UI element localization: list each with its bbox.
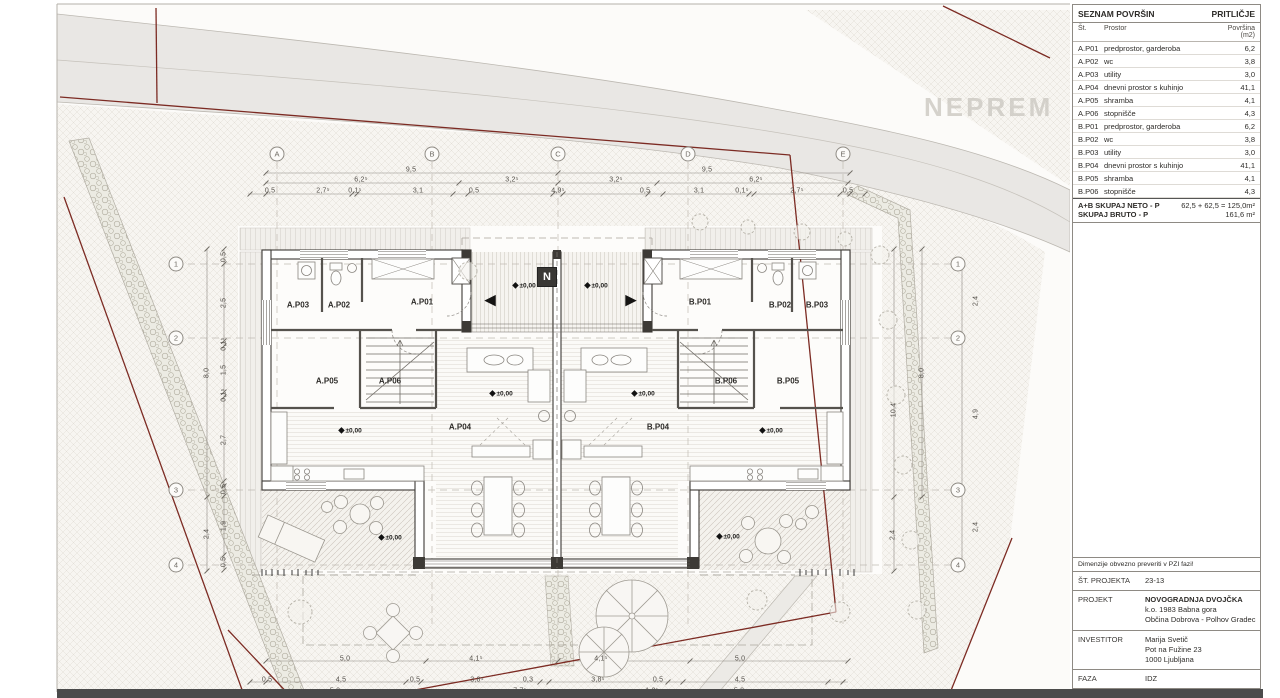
- project-municipality: Občina Dobrova - Polhov Gradec: [1145, 615, 1255, 624]
- project-label: PROJEKT: [1073, 594, 1145, 626]
- floor-plan-sheet: 9,59,56,2⁵3,2⁵3,2⁵6,2⁵0,52,7⁵0,1⁵3,10,54…: [0, 0, 1280, 698]
- investor-city: 1000 Ljubljana: [1145, 655, 1194, 664]
- investor-street: Pot na Fužine 23: [1145, 645, 1202, 654]
- project-number: 23-13: [1145, 575, 1260, 587]
- area-table-row: A.P06stopnišče4,3: [1073, 107, 1260, 120]
- site-plan: 9,59,56,2⁵3,2⁵3,2⁵6,2⁵0,52,7⁵0,1⁵3,10,54…: [0, 0, 1070, 698]
- area-table-row: A.P03utility3,0: [1073, 68, 1260, 81]
- area-table-row: B.P02wc3,8: [1073, 133, 1260, 146]
- area-table-row: B.P03utility3,0: [1073, 146, 1260, 159]
- title-block: Dimenzije obvezno preveriti v PZI fazi! …: [1073, 557, 1260, 688]
- area-table-row: B.P06stopnišče4,3: [1073, 185, 1260, 198]
- area-table-row: A.P05shramba4,1: [1073, 94, 1260, 107]
- project-number-row: ŠT. PROJEKTA 23-13: [1073, 572, 1260, 591]
- investor-name: Marija Svetič: [1145, 635, 1188, 644]
- col-room: Prostor: [1104, 25, 1215, 39]
- investor-label: INVESTITOR: [1073, 634, 1145, 666]
- area-table: SEZNAM POVRŠIN PRITLIČJE Št. Prostor Pov…: [1073, 5, 1260, 223]
- area-table-row: A.P01predprostor, garderoba6,2: [1073, 42, 1260, 55]
- sum-neto-label: A+B SKUPAJ NETO - P: [1078, 201, 1160, 210]
- phase-row: FAZA IDZ: [1073, 670, 1260, 688]
- area-table-header: SEZNAM POVRŠIN PRITLIČJE: [1073, 5, 1260, 23]
- area-table-rows: A.P01predprostor, garderoba6,2A.P02wc3,8…: [1073, 42, 1260, 198]
- sheet-bottom-bar: [57, 689, 1263, 698]
- sum-neto-value: 62,5 + 62,5 = 125,0m²: [1181, 201, 1255, 210]
- investor-row: INVESTITOR Marija Svetič Pot na Fužine 2…: [1073, 631, 1260, 670]
- dimension-note: Dimenzije obvezno preveriti v PZI fazi!: [1073, 557, 1260, 572]
- area-table-row: A.P04dnevni prostor s kuhinjo41,1: [1073, 81, 1260, 94]
- area-table-title: SEZNAM POVRŠIN: [1078, 9, 1155, 19]
- area-table-summary: A+B SKUPAJ NETO - P 62,5 + 62,5 = 125,0m…: [1073, 198, 1260, 222]
- project-cadastre: k.o. 1983 Babna gora: [1145, 605, 1217, 614]
- site-plan-drawing: [0, 0, 1070, 698]
- sum-bruto-value: 161,6 m²: [1225, 210, 1255, 219]
- area-table-floor: PRITLIČJE: [1212, 9, 1255, 19]
- area-table-columns: Št. Prostor Površina (m2): [1073, 23, 1260, 42]
- col-area: Površina (m2): [1215, 25, 1255, 39]
- area-table-row: B.P01predprostor, garderoba6,2: [1073, 120, 1260, 133]
- phase-value: IDZ: [1145, 673, 1260, 685]
- watermark: NEPREM: [924, 92, 1053, 123]
- area-table-row: A.P02wc3,8: [1073, 55, 1260, 68]
- project-number-label: ŠT. PROJEKTA: [1073, 575, 1145, 587]
- project-name: NOVOGRADNJA DVOJČKA: [1145, 595, 1243, 604]
- project-row: PROJEKT NOVOGRADNJA DVOJČKA k.o. 1983 Ba…: [1073, 591, 1260, 630]
- sum-bruto-label: SKUPAJ BRUTO - P: [1078, 210, 1148, 219]
- title-panel: SEZNAM POVRŠIN PRITLIČJE Št. Prostor Pov…: [1072, 4, 1261, 689]
- phase-label: FAZA: [1073, 673, 1145, 685]
- col-number: Št.: [1078, 25, 1104, 39]
- area-table-row: B.P05shramba4,1: [1073, 172, 1260, 185]
- area-table-row: B.P04dnevni prostor s kuhinjo41,1: [1073, 159, 1260, 172]
